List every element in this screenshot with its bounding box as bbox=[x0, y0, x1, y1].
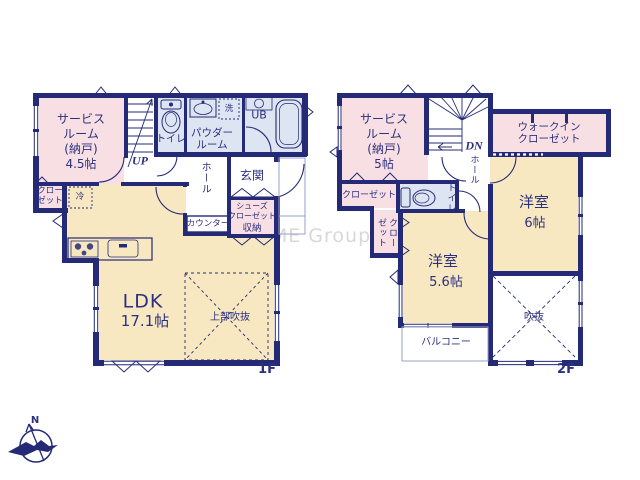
room-label-closet-1f: クロー ゼット bbox=[37, 186, 63, 206]
room-label-hall-1f: ホール bbox=[198, 162, 210, 195]
room-label-closet-2f-a: クローゼット bbox=[342, 191, 396, 202]
room-label-ldk: LDK bbox=[123, 290, 164, 313]
room-label-closet-2f-b: クローゼット bbox=[375, 216, 397, 250]
room-label-service-room-2f: サービス ルーム (納戸) 5帖 bbox=[360, 112, 408, 172]
room-size-ldk: 17.1帖 bbox=[121, 312, 169, 330]
room-label-hall-2f: ホール bbox=[468, 155, 479, 185]
room-label-bedroom6: 洋室 bbox=[519, 193, 549, 211]
compass-icon bbox=[8, 424, 58, 462]
fridge-label: 冷 bbox=[76, 192, 85, 202]
counter-label: カウンター bbox=[187, 219, 230, 229]
room-label-powder-room: パウダー ルーム bbox=[191, 127, 233, 151]
void-label: 吹抜 bbox=[524, 312, 544, 324]
stairs-up-label: UP bbox=[132, 154, 148, 169]
room-label-unit-bath: UB bbox=[251, 108, 267, 121]
room-label-shoes-closet: シューズ クローゼット bbox=[228, 202, 276, 221]
floorplan-canvas: ME Group bbox=[0, 0, 640, 480]
balcony-label: バルコニー bbox=[421, 337, 471, 349]
room-label-toilet-1f: トイレ bbox=[156, 134, 186, 146]
floor1-label: 1F bbox=[258, 362, 276, 378]
washer-label: 洗 bbox=[225, 104, 234, 114]
room-label-toilet-2f: トイレ bbox=[445, 183, 456, 213]
room-label-entrance: 玄関 bbox=[240, 169, 264, 184]
room-size-bedroom6: 6帖 bbox=[524, 216, 545, 232]
floor2-label: 2F bbox=[557, 362, 575, 378]
room-label-storage: 収納 bbox=[242, 223, 261, 235]
compass-north-label: N bbox=[31, 415, 39, 427]
floorplan-drawing bbox=[0, 0, 640, 480]
room-label-service-room-1f: サービス ルーム (納戸) 4.5帖 bbox=[57, 112, 105, 172]
room-label-walk-in-closet: ウォークイン クローゼット bbox=[518, 121, 581, 145]
void-above-label: 上部吹抜 bbox=[210, 312, 250, 324]
stairs-down-label: DN bbox=[465, 139, 482, 154]
entrance-porch bbox=[279, 158, 305, 234]
room-label-bedroom56: 洋室 bbox=[428, 252, 458, 270]
room-size-bedroom56: 5.6帖 bbox=[429, 275, 463, 291]
